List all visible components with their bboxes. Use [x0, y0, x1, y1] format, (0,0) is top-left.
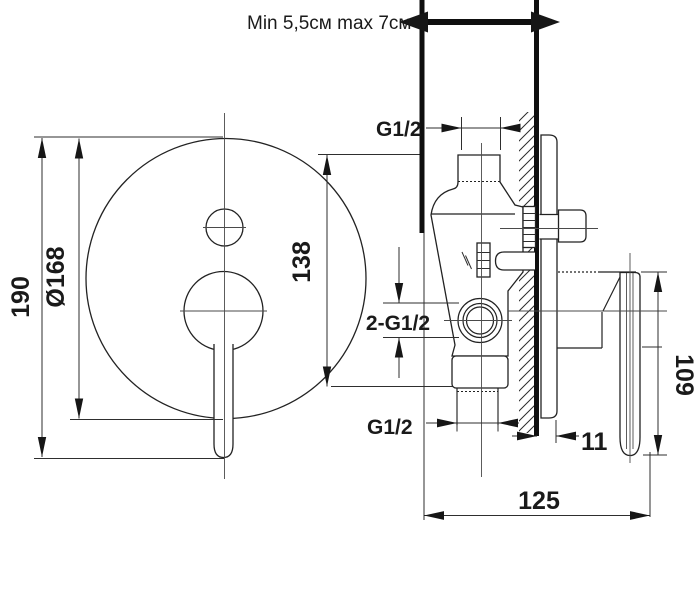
dim-138-label: 138	[288, 241, 316, 283]
plate-protrusion-label: 11	[581, 428, 608, 456]
depth-note-label: Min 5,5см max 7см	[247, 13, 411, 34]
front-view	[86, 113, 366, 479]
outlet-stub	[496, 252, 536, 270]
dimension-top-thread: G1/2	[376, 117, 521, 150]
diverter-knob-side	[540, 210, 587, 242]
mixer-installation-diagram: 190 Ø168 138	[0, 0, 695, 604]
bottom-flange	[452, 356, 508, 388]
front-threads-label: 2-G1/2	[366, 312, 430, 335]
dimension-bottom-thread: G1/2	[367, 392, 519, 439]
dimension-handle-length: 109	[641, 272, 695, 455]
technical-drawing: 190 Ø168 138	[0, 0, 695, 604]
lever-front	[214, 344, 233, 458]
dim-168-label: Ø168	[42, 246, 70, 307]
wall-depth-annotation: Min 5,5см max 7см	[247, 12, 560, 35]
side-view	[422, 0, 667, 520]
top-thread-label: G1/2	[376, 118, 422, 141]
threaded-connector	[523, 207, 536, 248]
rough-in-depth-label: 125	[518, 487, 560, 515]
escutcheon-plate-side	[541, 135, 557, 418]
dimension-rough-in-depth: 125	[424, 452, 650, 520]
dim-190-label: 190	[7, 276, 35, 318]
handle-length-label: 109	[670, 354, 695, 396]
bottom-pipe	[457, 388, 498, 425]
bottom-thread-label: G1/2	[367, 416, 413, 439]
